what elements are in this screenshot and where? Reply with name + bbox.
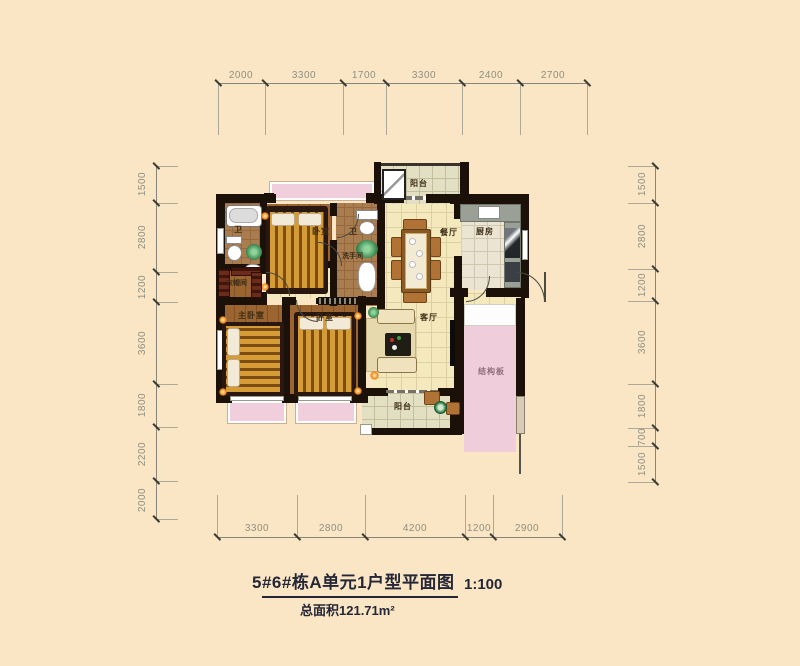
room-label-washroom: 洗手间 <box>342 253 363 260</box>
dimension-right-4: 1800 <box>637 391 649 421</box>
extension-line <box>628 203 655 204</box>
room-label-kitchen: 厨房 <box>476 228 494 236</box>
extension-line <box>628 301 655 302</box>
window-bedroom-bay <box>298 396 352 401</box>
extension-line <box>343 83 344 135</box>
decor <box>390 338 394 342</box>
extension-line <box>628 166 655 167</box>
extension-line <box>628 384 655 385</box>
room-label-cloakroom: 衣帽间 <box>226 280 247 287</box>
nightstand-lamp <box>219 316 227 324</box>
nightstand-lamp <box>354 312 362 320</box>
extension-line <box>265 83 266 135</box>
plant <box>246 244 262 260</box>
tick-mark <box>213 533 220 540</box>
dining-chair <box>403 292 427 303</box>
plan-title: 5#6#栋A单元1户型平面图 <box>252 572 455 594</box>
decor <box>392 345 397 350</box>
dimension-left-4: 1800 <box>137 390 149 420</box>
extension-line <box>218 83 219 135</box>
nightstand-lamp <box>354 387 362 395</box>
wall-living-right <box>454 294 464 392</box>
dimension-bottom-1: 2800 <box>316 523 346 535</box>
extension-line <box>365 495 366 537</box>
pillow <box>298 213 322 226</box>
title-underline <box>262 596 458 598</box>
dimension-line-right <box>655 166 656 482</box>
wall-living-left <box>358 296 366 396</box>
bay-window-top <box>270 182 374 200</box>
bay-window-master <box>228 401 286 423</box>
dimension-top-1: 3300 <box>289 70 319 82</box>
kitchen-sink <box>478 206 500 219</box>
dimension-right-1: 2800 <box>637 221 649 251</box>
extension-line <box>297 495 298 537</box>
plant <box>368 307 379 318</box>
room-label-bath2: 卫 <box>349 228 358 236</box>
dimension-left-2: 1200 <box>137 272 149 302</box>
dimension-left-5: 2200 <box>137 439 149 469</box>
sofa <box>377 357 417 373</box>
dimension-top-5: 2700 <box>538 70 568 82</box>
dimension-bottom-4: 2900 <box>512 523 542 535</box>
window-bath1 <box>217 228 224 254</box>
dimension-line-bottom <box>217 537 562 538</box>
wardrobe <box>251 272 262 298</box>
room-label-bedroom-top: 卧室 <box>312 228 330 236</box>
decor <box>397 336 401 340</box>
dimension-bottom-0: 3300 <box>242 523 272 535</box>
dimension-left-3: 3600 <box>137 328 149 358</box>
room-label-balcony-bottom: 阳台 <box>394 403 412 411</box>
toilet-bowl <box>359 221 375 235</box>
dimension-left-6: 2000 <box>137 485 149 515</box>
sliding-door-balcony-top <box>404 196 426 200</box>
room-label-dining: 餐厅 <box>440 229 458 237</box>
wall-stub-bay-left <box>264 193 274 203</box>
dimension-right-5: 700 <box>637 422 649 452</box>
extension-line <box>217 495 218 537</box>
nightstand-lamp <box>219 388 227 396</box>
dining-chair <box>430 260 441 280</box>
extension-line <box>562 495 563 537</box>
dimension-left-0: 1500 <box>137 169 149 199</box>
dimension-right-2: 1200 <box>637 270 649 300</box>
room-label-bath1: 卫 <box>234 226 243 234</box>
balcony-corner-step <box>360 424 372 435</box>
plate <box>409 261 416 268</box>
floorplan-canvas: 卫 卧室 卫 洗手间 阳台 餐厅 厨房 衣帽间 主卧室 卧室 客厅 结构板 阳台… <box>0 0 800 666</box>
balcony-rail-bottom <box>362 428 462 435</box>
room-label-bedroom-side: 卧室 <box>316 314 334 322</box>
dimension-top-3: 3300 <box>409 70 439 82</box>
dining-chair <box>430 237 441 257</box>
dimension-right-3: 3600 <box>637 327 649 357</box>
extension-line <box>587 83 588 135</box>
water-heater <box>382 169 406 200</box>
slab-top-white <box>464 304 516 326</box>
balcony-rail-top <box>381 163 460 166</box>
plan-scale: 1:100 <box>464 575 502 595</box>
room-label-balcony-top: 阳台 <box>410 180 428 188</box>
balcony-chair <box>446 402 460 415</box>
structural-slab <box>464 326 516 452</box>
sofa <box>377 309 415 324</box>
boundary-line <box>519 434 521 474</box>
pillow <box>227 328 240 356</box>
room-label-master-bedroom: 主卧室 <box>238 312 265 320</box>
washbasin <box>358 262 376 292</box>
plate <box>416 273 423 280</box>
extension-line <box>462 83 463 135</box>
toilet-tank <box>356 210 378 220</box>
dimension-line-top <box>218 83 587 84</box>
dimension-top-2: 1700 <box>349 70 379 82</box>
bathtub-inner <box>229 208 258 223</box>
dimension-bottom-2: 4200 <box>400 523 430 535</box>
nightstand-lamp <box>261 212 269 220</box>
balcony-table <box>434 401 447 414</box>
extension-line <box>386 83 387 135</box>
door-leaf-entry <box>544 272 546 302</box>
tv-panel <box>450 320 455 366</box>
floor-lamp <box>370 371 379 380</box>
wall-top-mid-b <box>426 194 452 203</box>
wall-living-bottom-a <box>358 388 388 396</box>
window-master-bay <box>230 396 284 401</box>
dimension-top-4: 2400 <box>476 70 506 82</box>
plate <box>416 250 423 257</box>
heater-band-bedroom-side <box>316 298 356 304</box>
plate <box>409 238 416 245</box>
dimension-top-0: 2000 <box>226 70 256 82</box>
dimension-left-1: 2800 <box>137 222 149 252</box>
wall-kitchen-left-b <box>454 256 462 296</box>
extension-line <box>628 482 655 483</box>
fridge <box>505 228 520 258</box>
pillow <box>227 359 240 387</box>
dimension-bottom-3: 1200 <box>464 523 494 535</box>
room-label-living: 客厅 <box>420 314 438 322</box>
dimension-right-6: 1500 <box>637 449 649 479</box>
extension-line <box>520 83 521 135</box>
pillow <box>271 213 295 226</box>
wall-bath2-left-a <box>330 203 337 216</box>
door-arc-entry <box>517 272 545 302</box>
wall-slab-right <box>516 298 525 396</box>
wall-balcony-top-left <box>374 162 381 204</box>
toilet-bowl <box>227 245 242 261</box>
toilet-tank <box>226 236 242 244</box>
bay-window-bedroom <box>296 401 356 423</box>
tick-mark <box>152 515 159 522</box>
room-label-slab: 结构板 <box>478 368 505 376</box>
window-kitchen <box>522 230 528 260</box>
wall-master-top <box>216 297 266 305</box>
dimension-right-0: 1500 <box>637 169 649 199</box>
plan-total-area: 总面积121.71m² <box>300 603 395 620</box>
dimension-line-left <box>156 166 157 519</box>
wall-bath2-right <box>377 203 385 310</box>
wall-segment-beige <box>516 396 525 434</box>
